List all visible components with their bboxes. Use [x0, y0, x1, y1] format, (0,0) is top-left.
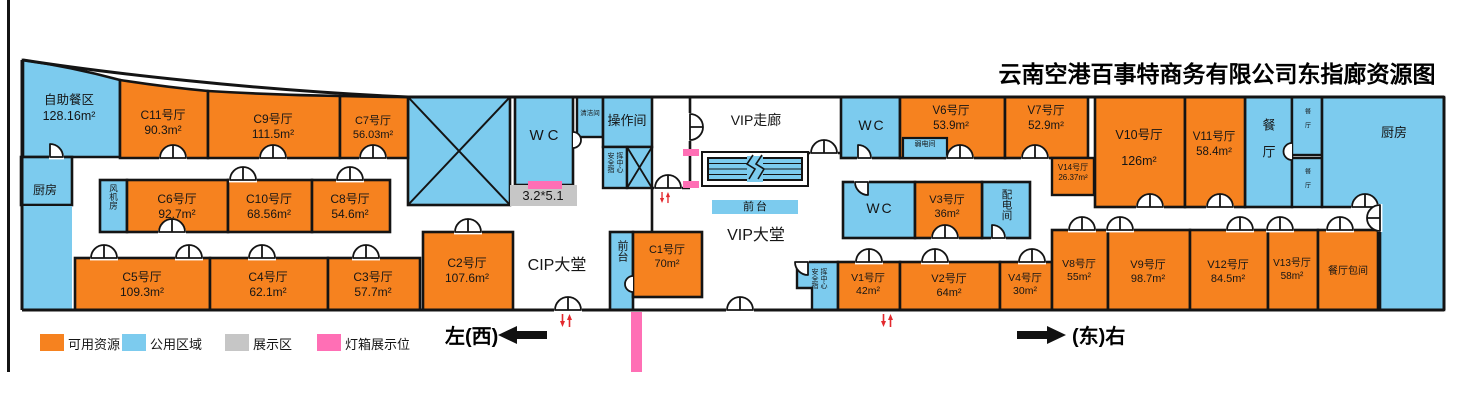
room-label-restaurant-small-a: 餐厅: [1303, 108, 1312, 136]
room-label-v14: V14号厅26.37m²: [1058, 163, 1088, 183]
room-label-v6: V6号厅53.9m²: [932, 104, 969, 133]
room-label-vip-corridor: VIP走廊: [731, 112, 782, 130]
updown-arrow-icon: [660, 192, 670, 203]
lightbox-marker-corridor-1: [683, 149, 699, 156]
room-label-v8: V8号厅55m²: [1062, 258, 1096, 285]
door-icon: [248, 245, 276, 260]
door-icon: [336, 167, 364, 182]
east-arrow-icon: [1017, 326, 1066, 344]
room-label-c10: C10号厅68.56m²: [246, 192, 292, 223]
room-label-c1: C1号厅70m²: [649, 243, 685, 271]
door-icon: [175, 245, 203, 260]
legend-swatch-lightbox: [317, 334, 341, 351]
room-label-wc-center: WC: [530, 126, 563, 145]
room-label-v11: V11号厅58.4m²: [1193, 130, 1236, 159]
door-icon: [90, 245, 118, 260]
room-label-v4: V4号厅30m²: [1008, 272, 1042, 299]
room-label-weak-current: 弱电间: [915, 141, 936, 150]
legend-swatch-available: [40, 334, 64, 351]
lightbox-marker-entrance: [631, 312, 642, 372]
room-label-buffet: 自助餐区 128.16m²: [43, 92, 96, 124]
room-label-c9: C9号厅111.5m²: [252, 112, 294, 143]
door-icon: [855, 249, 883, 264]
door-icon: [726, 297, 754, 312]
door-icon: [229, 167, 257, 182]
room-label-kitchen-right: 厨房: [1381, 125, 1407, 142]
room-label-wc-right-mid: WC: [866, 200, 893, 218]
door-icon: [810, 140, 838, 155]
floor-plan-page: 云南空港百事特商务有限公司东指廊资源图 自助餐区 128.16m² 厨房 风机房…: [0, 0, 1466, 407]
room-label-v12: V12号厅84.5m²: [1207, 258, 1249, 286]
room-label-cleaning: 清洁间: [580, 110, 600, 118]
room-label-v10: V10号厅126m²: [1115, 122, 1162, 175]
room-label-cip-hall: CIP大堂: [528, 256, 587, 276]
door-icon: [1068, 217, 1096, 232]
door-icon: [1326, 217, 1354, 232]
room-label-restaurant-small-b: 餐厅: [1303, 168, 1312, 196]
room-label-v3: V3号厅36m²: [929, 193, 964, 221]
direction-west-label: 左(西): [445, 320, 498, 349]
legend-swatch-display: [225, 334, 249, 351]
legend-label-lightbox: 灯箱展示位: [345, 334, 410, 353]
west-arrow-icon: [498, 326, 547, 344]
room-label-v1: V1号厅42m²: [851, 272, 885, 299]
room-label-c5: C5号厅109.3m²: [120, 270, 164, 301]
public-strip-shape: [22, 206, 72, 309]
room-label-c3: C3号厅57.7m²: [353, 270, 392, 301]
door-icon: [352, 245, 380, 260]
door-icon: [454, 219, 482, 234]
room-label-kitchen-left: 厨房: [33, 183, 57, 198]
room-label-c4: C4号厅62.1m²: [248, 270, 287, 301]
room-label-v13: V13号厅58m²: [1273, 258, 1311, 284]
room-label-fan: 风机房: [109, 184, 118, 210]
room-label-c11: C11号厅90.3m²: [140, 108, 185, 139]
room-label-c2: C2号厅107.6m²: [445, 256, 489, 287]
legend-label-display: 展示区: [253, 334, 292, 353]
room-label-v9: V9号厅98.7m²: [1130, 258, 1165, 286]
legend-label-public: 公用区域: [150, 334, 202, 353]
room-label-c8: C8号厅54.6m²: [330, 192, 369, 223]
room-label-c7: C7号厅56.03m²: [353, 114, 393, 142]
room-label-security-center-1: 安全指挥中心: [606, 152, 624, 178]
room-label-restaurant: 餐厅: [1259, 118, 1278, 172]
page-title: 云南空港百事特商务有限公司东指廊资源图: [988, 55, 1446, 89]
door-icon: [1266, 217, 1294, 232]
room-label-security-center-2: 安全指挥中心: [810, 268, 828, 294]
door-icon: [921, 249, 949, 264]
door-icon: [554, 297, 582, 312]
room-label-vip-hall: VIP大堂: [727, 226, 785, 246]
door-icon: [1018, 249, 1046, 264]
legend-label-available: 可用资源: [68, 334, 120, 353]
room-label-wc-right-top: WC: [858, 117, 885, 135]
room-label-v2: V2号厅64m²: [931, 272, 966, 300]
front-desk-vip-label: 前台: [743, 200, 769, 214]
room-label-power: 配电间: [1001, 189, 1012, 221]
room-label-c6: C6号厅92.7m²: [157, 192, 196, 223]
lightbox-marker-corridor-2: [683, 181, 699, 188]
door-icon: [1284, 143, 1293, 160]
room-label-v7: V7号厅52.9m²: [1027, 104, 1064, 133]
page-edge-line: [7, 0, 10, 372]
front-desk-cip-label: 前台: [616, 240, 628, 262]
updown-arrow-icon: [881, 314, 893, 327]
updown-arrow-icon: [560, 314, 572, 327]
door-icon: [573, 132, 581, 148]
door-icon: [625, 276, 633, 292]
door-icon: [1226, 217, 1254, 232]
door-icon: [688, 113, 703, 141]
door-icon: [1106, 217, 1134, 232]
wall-center-corridor: [652, 188, 690, 232]
room-label-private-dining: 餐厅包间: [1328, 266, 1368, 279]
direction-east-label: (东)右: [1072, 320, 1125, 349]
door-icon: [654, 175, 682, 190]
display-size-label: 3.2*5.1: [522, 188, 563, 205]
legend-swatch-public: [122, 334, 146, 351]
room-label-operation: 操作间: [607, 113, 646, 130]
